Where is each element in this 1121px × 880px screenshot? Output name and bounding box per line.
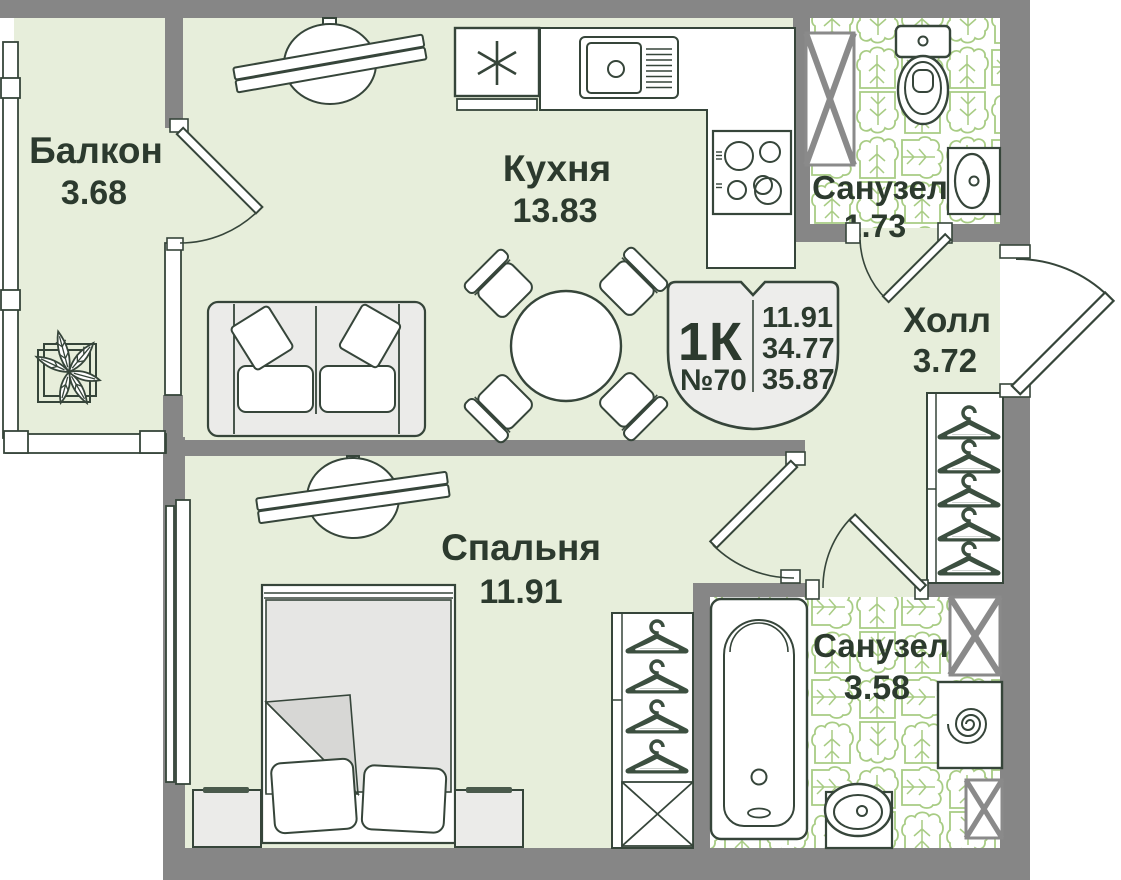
nightstand-icon: [193, 787, 261, 847]
wall-right-lower: [1000, 390, 1030, 880]
kitchen-balcony-window: [165, 243, 181, 395]
bathroom-top-label: Санузел: [812, 169, 948, 206]
unit-type: 1К: [678, 312, 743, 372]
vent-shaft-icon: [966, 780, 1002, 838]
balcony-window-left: [3, 42, 18, 438]
hall-wardrobe-icon: [927, 393, 1003, 583]
nightstand-icon: [455, 787, 523, 847]
window-mullion: [1, 78, 20, 98]
unit-info-badge: 1К №70 11.91 34.77 35.87: [668, 282, 838, 429]
bathroom-bottom-area: 3.58: [844, 669, 910, 707]
vent-shaft-icon: [806, 33, 854, 165]
entrance-door: [1000, 245, 1114, 397]
kitchen-sink-icon: [580, 37, 678, 98]
unit-area-total: 35.87: [762, 364, 835, 396]
bathroom-bottom-label: Санузел: [813, 627, 949, 664]
bathtub-icon: [711, 599, 807, 839]
wall-bath2-top-right: [918, 583, 1000, 597]
window-mullion: [1, 290, 20, 310]
window-post: [140, 431, 165, 453]
balcony-floor: [14, 18, 183, 436]
wall-bottom: [163, 848, 1030, 880]
unit-number: №70: [680, 364, 747, 397]
balcony-area: 3.68: [61, 174, 127, 212]
kitchen-area: 13.83: [512, 192, 597, 230]
bath-sink-icon: [825, 784, 892, 848]
bedroom-label: Спальня: [441, 527, 601, 568]
wall-right-upper: [1000, 18, 1030, 250]
washing-machine-icon: [938, 682, 1002, 768]
wall-bath2-left: [693, 597, 710, 848]
bath-sink-icon: [948, 148, 1000, 214]
bedroom-window-outer: [166, 506, 174, 782]
sofa-icon: [208, 302, 425, 436]
wall-balcony-kitchen: [165, 18, 183, 128]
hall-area: 3.72: [913, 342, 977, 379]
vent-shaft-icon: [950, 597, 1000, 675]
floor-plan-page: Балкон 3.68: [0, 0, 1121, 880]
hall-label: Холл: [903, 301, 991, 340]
bedroom-window-inner: [176, 500, 190, 784]
bed-icon: [262, 585, 455, 843]
bedroom-wardrobe-icon: [612, 613, 693, 848]
window-post: [4, 431, 28, 453]
bedroom-area: 11.91: [479, 573, 562, 611]
balcony-label: Балкон: [29, 130, 163, 171]
unit-area-living: 11.91: [762, 302, 833, 334]
floor-plan: Балкон 3.68: [0, 0, 1121, 880]
unit-area: 34.77: [762, 333, 835, 365]
wall-bedroom-top: [163, 440, 805, 456]
wall-bath2-top-left: [693, 583, 815, 597]
toilet-icon: [896, 26, 950, 124]
stove-icon: [713, 131, 791, 214]
wall-top: [0, 0, 1030, 18]
kitchen-label: Кухня: [503, 148, 611, 189]
shelf-x-icon: [622, 782, 693, 846]
